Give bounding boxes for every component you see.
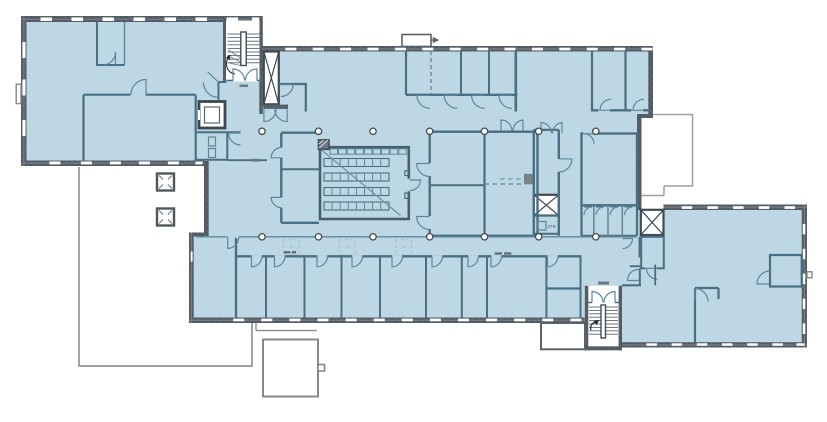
svg-text:27B: 27B [548, 224, 556, 229]
